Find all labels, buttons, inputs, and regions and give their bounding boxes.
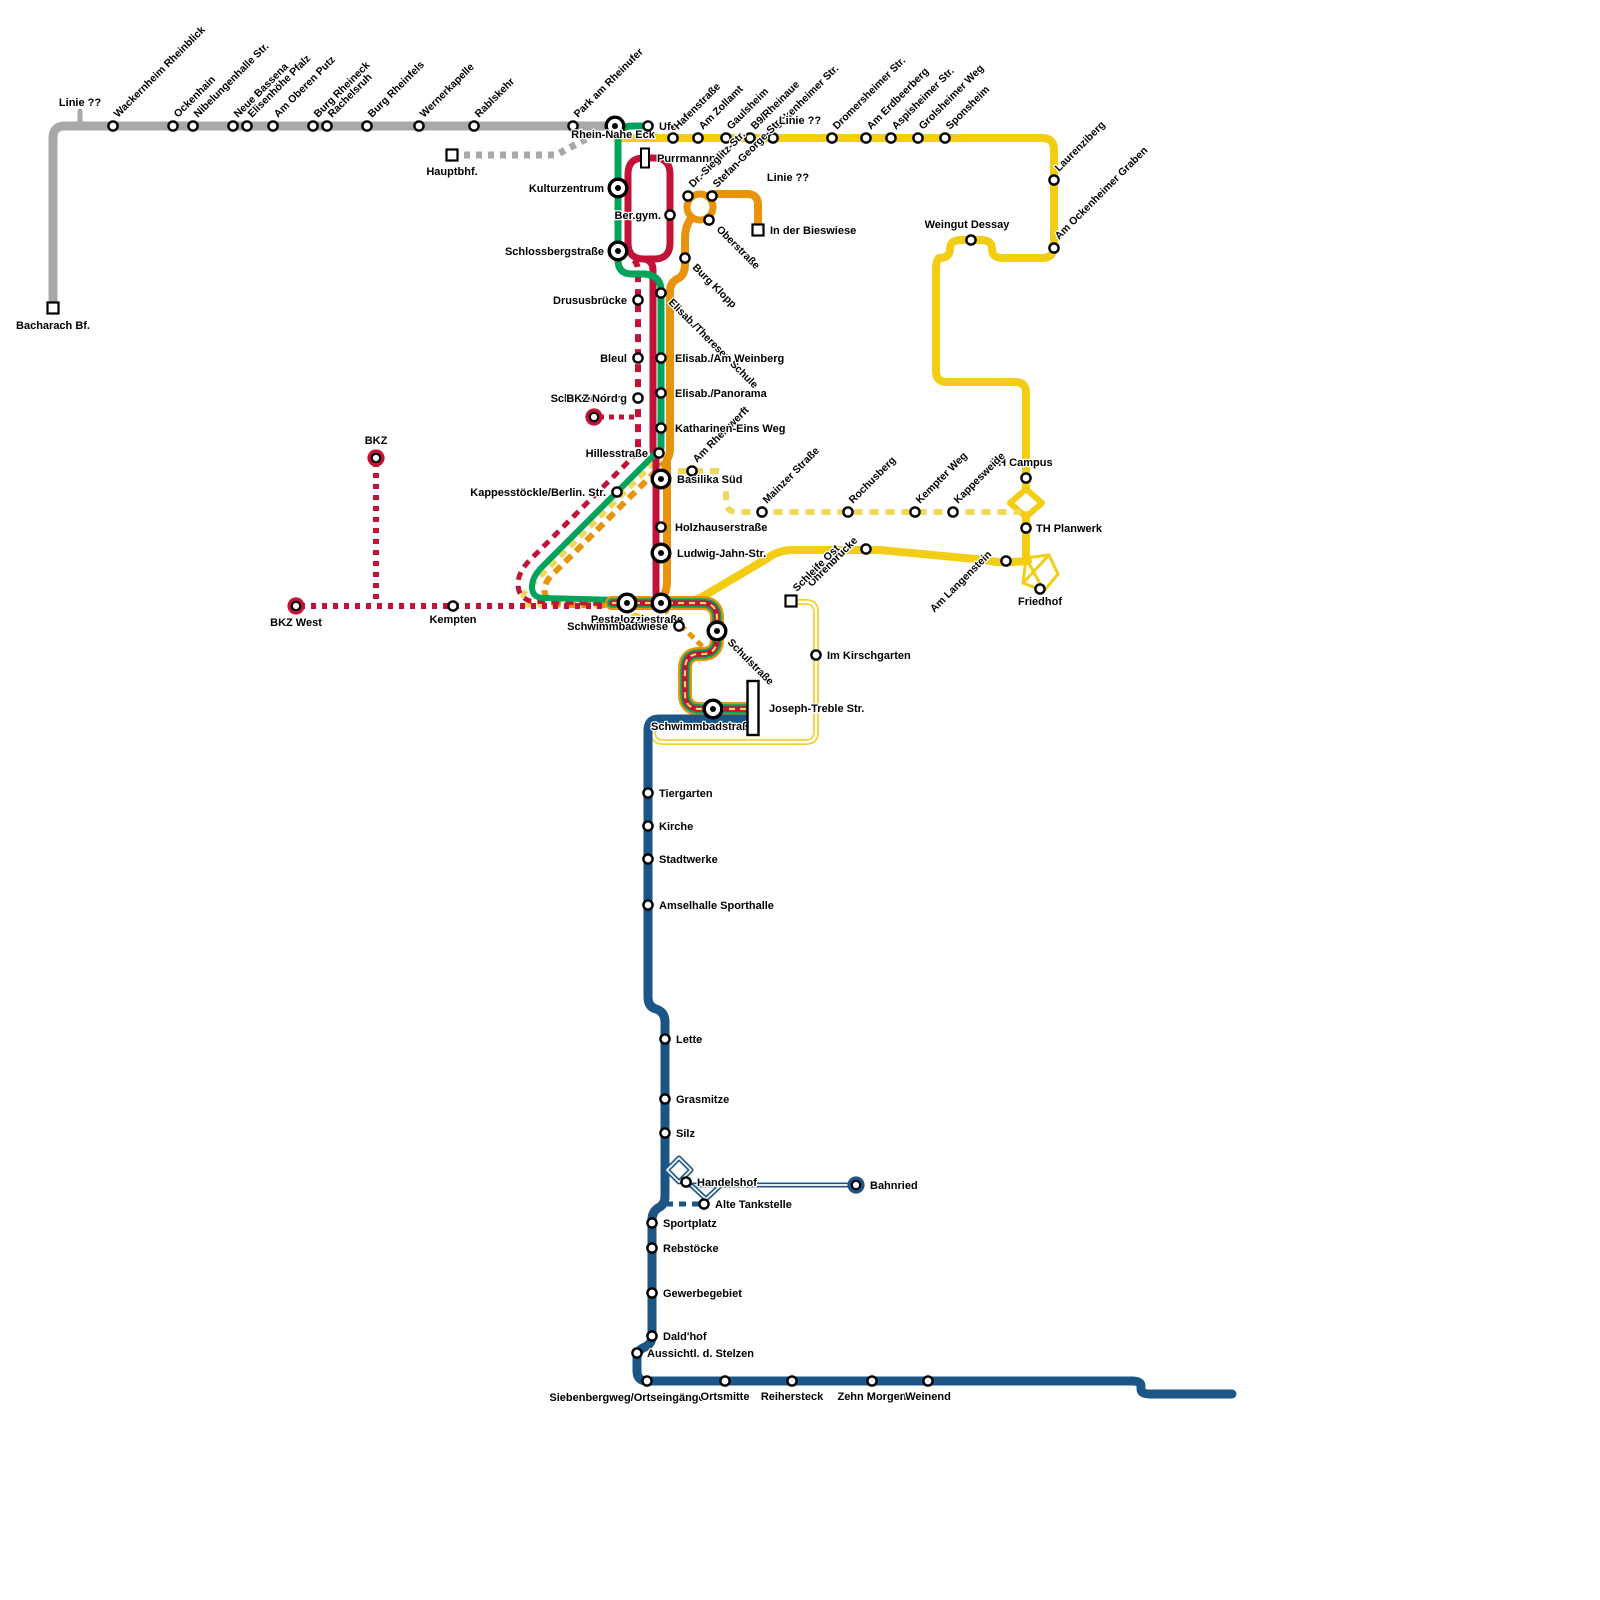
stop-marker — [683, 191, 692, 200]
terminal-marker — [292, 602, 300, 610]
station-bkz: BKZ — [365, 435, 388, 467]
station-wackernheim-rheinblick: Wackernheim Rheinblick — [108, 24, 207, 131]
station-label: Drususbrücke — [553, 295, 627, 307]
station-im-kirschgarten: Im Kirschgarten — [811, 650, 911, 662]
hub-dot — [658, 476, 664, 482]
stop-marker — [362, 121, 371, 130]
line-badge-1: Linie ?? — [779, 115, 821, 127]
stop-marker — [886, 133, 895, 142]
station-label: Basilika Süd — [677, 474, 742, 486]
station-bacharach-bf: Bacharach Bf. — [16, 303, 90, 333]
station-label: Hillesstraße — [586, 448, 648, 460]
station-label: Aussichtl. d. Stelzen — [647, 1348, 754, 1360]
stop-marker — [633, 353, 642, 362]
stop-marker — [268, 121, 277, 130]
station-label: Rochusberg — [847, 454, 899, 506]
stop-marker — [693, 133, 702, 142]
station-gewerbegebiet: Gewerbegebiet — [647, 1288, 742, 1300]
stop-marker — [843, 507, 852, 516]
stop-marker — [681, 1177, 690, 1186]
station-th-planwerk: TH Planwerk — [1021, 523, 1103, 535]
station-label: Schwimmbadstraße — [651, 721, 755, 733]
stop-marker — [647, 1288, 656, 1297]
station-label: Zehn Morgen — [837, 1391, 906, 1403]
hub-dot — [710, 706, 716, 712]
station-label: Amselhalle Sporthalle — [659, 900, 774, 912]
stop-marker — [660, 1094, 669, 1103]
line-badge-2: Linie ?? — [767, 172, 809, 184]
stop-marker — [665, 210, 674, 219]
station-label: Rebstöcke — [663, 1243, 719, 1255]
stop-marker — [108, 121, 117, 130]
stop-marker — [656, 423, 665, 432]
station-burg-rheinfels: Burg Rheinfels — [362, 59, 427, 131]
station-kappesst-ckle-berlin-str: Kappesstöckle/Berlin. Str. — [470, 487, 621, 499]
station-alte-tankstelle: Alte Tankstelle — [699, 1199, 791, 1211]
station-label: Ber.gym. — [615, 210, 661, 222]
stop-marker — [699, 1199, 708, 1208]
station-label: Friedhof — [1018, 596, 1062, 608]
station-label: Schlossbergstraße — [505, 246, 604, 258]
station-label: Grasmitze — [676, 1094, 729, 1106]
hub-dot — [714, 628, 720, 634]
station-park-am-rheinufer: Park am Rheinufer — [568, 46, 645, 131]
station-kempter-weg: Kempter Weg — [910, 450, 969, 517]
terminal-square — [786, 596, 797, 607]
terminal-square — [753, 225, 764, 236]
stop-marker — [910, 507, 919, 516]
stop-marker — [966, 235, 975, 244]
stop-marker — [1021, 523, 1030, 532]
stop-marker — [643, 121, 652, 130]
stop-marker — [861, 133, 870, 142]
stop-marker — [414, 121, 423, 130]
station-aussichtl-d-stelzen: Aussichtl. d. Stelzen — [632, 1348, 754, 1360]
hub-dot — [658, 550, 664, 556]
station-label: Katharinen-Eins Weg — [675, 423, 785, 435]
stop-marker — [787, 1376, 796, 1385]
station-burg-klopp: Burg Klopp — [680, 253, 738, 310]
stop-marker — [308, 121, 317, 130]
terminal-square — [447, 150, 458, 161]
station-label: Lette — [676, 1034, 702, 1046]
station-label: BKZ West — [270, 617, 322, 629]
stop-marker — [643, 900, 652, 909]
station-label: Park am Rheinufer — [572, 46, 646, 120]
transit-map-svg: Bacharach Bf.Wackernheim RheinblickOcken… — [0, 0, 1600, 1600]
station-rhein-nahe-eck: Rhein-Nahe Eck — [571, 117, 656, 141]
station-weingut-dessay: Weingut Dessay — [925, 219, 1011, 245]
stop-marker — [469, 121, 478, 130]
stop-marker — [656, 522, 665, 531]
stop-marker — [647, 1331, 656, 1340]
station-drususbr-cke: Drususbrücke — [553, 295, 643, 307]
station-label: Kirche — [659, 821, 693, 833]
station-laurenziberg: Laurenziberg — [1049, 119, 1107, 185]
terminal-bar — [641, 149, 649, 168]
station-label: Bacharach Bf. — [16, 320, 90, 332]
station-friedhof: Friedhof — [1018, 584, 1062, 608]
stop-marker — [643, 854, 652, 863]
line-badge-0: Linie ?? — [59, 97, 101, 109]
station-amselhalle-sporthalle: Amselhalle Sporthalle — [643, 900, 774, 912]
station-label: Stadtwerke — [659, 854, 718, 866]
station-bkz-west: BKZ West — [270, 597, 322, 629]
stop-marker — [656, 353, 665, 362]
stop-marker — [827, 133, 836, 142]
station-label: BKZ — [365, 435, 388, 447]
line-yellow-dash-diag — [522, 462, 655, 606]
station-label: Siebenbergweg/Ortseingänge — [549, 1392, 704, 1404]
stop-marker — [811, 650, 820, 659]
stop-marker — [322, 121, 331, 130]
station-label: Rhein-Nahe Eck — [571, 129, 656, 141]
station-label: Ortsmitte — [701, 1391, 750, 1403]
stop-marker — [643, 788, 652, 797]
station-label: Reihersteck — [761, 1391, 824, 1403]
stop-marker — [707, 191, 716, 200]
stop-marker — [633, 295, 642, 304]
station-stadtwerke: Stadtwerke — [643, 854, 717, 866]
stop-marker — [647, 1218, 656, 1227]
station-label: Elisab./Am Weinberg — [675, 353, 784, 365]
station-pestalozziestra-e-ost — [652, 594, 670, 612]
station-label: Kappesstöckle/Berlin. Str. — [470, 487, 606, 499]
stop-marker — [1035, 584, 1044, 593]
station-label: Handelshof — [697, 1177, 757, 1189]
station-wernerkapelle: Wernerkapelle — [414, 61, 476, 131]
stop-marker — [633, 393, 642, 402]
station-label: Weinend — [905, 1391, 951, 1403]
stop-marker — [867, 1376, 876, 1385]
stop-marker — [1001, 556, 1010, 565]
stop-marker — [948, 507, 957, 516]
transit-map: Bacharach Bf.Wackernheim RheinblickOcken… — [0, 0, 1600, 1600]
station-label: Alte Tankstelle — [715, 1199, 792, 1211]
stop-marker — [940, 133, 949, 142]
stop-marker — [612, 487, 621, 496]
station-in-der-bieswiese: In der Bieswiese — [753, 225, 857, 238]
station-label: Bahnried — [870, 1180, 918, 1192]
station-label: Burg Klopp — [690, 262, 739, 311]
station-label: Kempten — [429, 614, 476, 626]
stop-marker — [632, 1348, 641, 1357]
station-dald-hof: Dald'hof — [647, 1331, 706, 1343]
station-label: Schwimmbadwiese — [567, 621, 668, 633]
station-schwimmbadwiese: Schwimmbadwiese — [567, 621, 683, 633]
terminal-marker — [372, 454, 380, 462]
station-label: Im Kirschgarten — [827, 650, 911, 662]
stop-marker — [228, 121, 237, 130]
station-label: Dald'hof — [663, 1331, 707, 1343]
station-bleul: Bleul — [600, 353, 643, 365]
station-bkz-nord: BKZ Nord — [566, 393, 617, 426]
stop-marker — [674, 621, 683, 630]
station-tiergarten: Tiergarten — [643, 788, 712, 800]
hub-dot — [615, 248, 621, 254]
stop-marker — [656, 288, 665, 297]
station-label: Wernerkapelle — [418, 61, 477, 120]
station-label: Bleul — [600, 353, 627, 365]
station-katharinen-eins-weg: Katharinen-Eins Weg — [656, 423, 785, 435]
stop-marker — [242, 121, 251, 130]
stop-marker — [757, 507, 766, 516]
stop-marker — [1049, 243, 1058, 252]
stop-marker — [654, 448, 663, 457]
hub-dot — [624, 600, 630, 606]
terminal-marker — [590, 413, 598, 421]
terminal-square — [48, 303, 59, 314]
stop-marker — [720, 1376, 729, 1385]
station-bahnried: Bahnried — [847, 1176, 917, 1193]
stop-marker — [704, 215, 713, 224]
station-label: Elisab./Panorama — [675, 388, 768, 400]
station-label: TH Planwerk — [1036, 523, 1103, 535]
terminal-bar — [748, 681, 759, 735]
station-label: Ludwig-Jahn-Str. — [677, 548, 766, 560]
station-kulturzentrum: Kulturzentrum — [529, 179, 627, 197]
station-schlossbergstra-e: Schlossbergstraße — [505, 242, 627, 260]
station-label: Gewerbegebiet — [663, 1288, 742, 1300]
stop-marker — [913, 133, 922, 142]
station-label: In der Bieswiese — [770, 225, 856, 237]
stop-marker — [647, 1243, 656, 1252]
stop-marker — [660, 1034, 669, 1043]
station-label: Silz — [676, 1128, 695, 1140]
stop-marker — [660, 1128, 669, 1137]
stop-marker — [923, 1376, 932, 1385]
stop-marker — [168, 121, 177, 130]
terminal-marker — [852, 1181, 860, 1189]
stop-marker — [861, 544, 870, 553]
station-ber-gym: Ber.gym. — [615, 210, 675, 222]
stop-marker — [656, 388, 665, 397]
hub-dot — [615, 185, 621, 191]
station-label: Laurenziberg — [1053, 119, 1108, 174]
station-elisab-am-weinberg: Elisab./Am Weinberg — [656, 353, 784, 365]
station-sportplatz: Sportplatz — [647, 1218, 717, 1230]
line-crimson-loop — [628, 158, 670, 259]
station-grasmitze: Grasmitze — [660, 1094, 729, 1106]
station-rebst-cke: Rebstöcke — [647, 1243, 718, 1255]
station-holzhauserstra-e: Holzhauserstraße — [656, 522, 767, 534]
station-ludwig-jahn-str: Ludwig-Jahn-Str. — [652, 544, 766, 562]
station-mainzer-stra-e: Mainzer Straße — [757, 445, 822, 517]
station-label: Holzhauserstraße — [675, 522, 767, 534]
station-label: Joseph-Treble Str. — [769, 703, 864, 715]
station-lette: Lette — [660, 1034, 702, 1046]
stop-marker — [188, 121, 197, 130]
station-joseph-treble-str: Joseph-Treble Str. — [748, 681, 865, 735]
stop-marker — [642, 1376, 651, 1385]
stop-marker — [680, 253, 689, 262]
station-silz: Silz — [660, 1128, 695, 1140]
stop-marker — [1021, 473, 1030, 482]
station-label: BKZ Nord — [566, 393, 617, 405]
station-rochusberg: Rochusberg — [843, 454, 898, 516]
station-label: Hauptbhf. — [426, 166, 477, 178]
station-am-rheinwerft: Am Rheinwerft — [687, 404, 751, 476]
stop-marker — [448, 601, 457, 610]
station-label: Kulturzentrum — [529, 183, 604, 195]
station-label: Elisab./Theresen-Schule — [666, 297, 760, 391]
stop-marker — [643, 821, 652, 830]
station-label: Tiergarten — [659, 788, 713, 800]
stop-marker — [1049, 175, 1058, 184]
station-label: Weingut Dessay — [925, 219, 1011, 231]
station-label: Sportplatz — [663, 1218, 717, 1230]
hub-dot — [658, 600, 664, 606]
station-label: Mainzer Straße — [761, 445, 822, 506]
station-label: Rablskehr — [473, 76, 517, 120]
stop-marker — [668, 133, 677, 142]
